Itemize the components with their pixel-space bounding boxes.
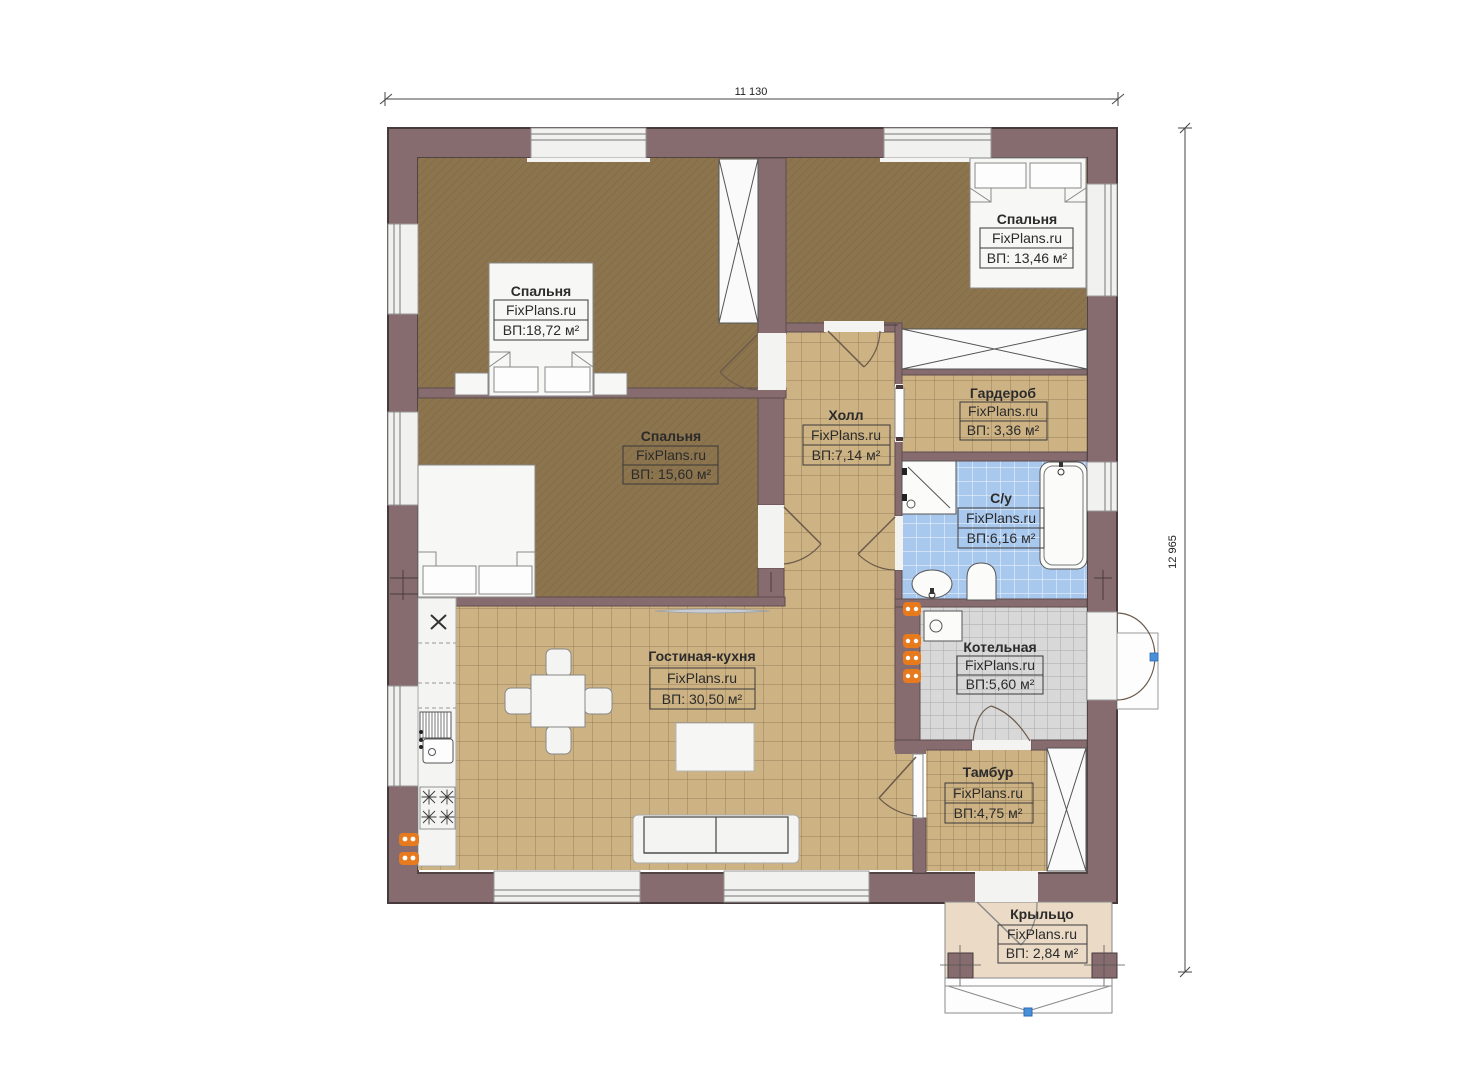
svg-text:Холл: Холл	[828, 407, 863, 423]
svg-text:FixPlans.ru: FixPlans.ru	[1007, 926, 1077, 942]
svg-text:FixPlans.ru: FixPlans.ru	[968, 403, 1038, 419]
svg-text:FixPlans.ru: FixPlans.ru	[992, 230, 1062, 246]
svg-text:Спальня: Спальня	[511, 283, 571, 299]
svg-text:ВП: 3,36 м²: ВП: 3,36 м²	[967, 422, 1040, 438]
svg-text:FixPlans.ru: FixPlans.ru	[636, 447, 706, 463]
svg-text:Котельная: Котельная	[963, 639, 1036, 655]
svg-text:FixPlans.ru: FixPlans.ru	[965, 657, 1035, 673]
svg-text:ВП: 13,46 м²: ВП: 13,46 м²	[987, 250, 1068, 266]
svg-text:Тамбур: Тамбур	[963, 764, 1014, 780]
svg-text:12 965: 12 965	[1167, 535, 1179, 569]
svg-text:Гостиная-кухня: Гостиная-кухня	[648, 648, 755, 664]
svg-text:Спальня: Спальня	[641, 428, 701, 444]
svg-text:ВП:6,16 м²: ВП:6,16 м²	[967, 530, 1036, 546]
svg-text:FixPlans.ru: FixPlans.ru	[966, 510, 1036, 526]
svg-text:Гардероб: Гардероб	[970, 385, 1037, 401]
svg-text:ВП:4,75 м²: ВП:4,75 м²	[954, 805, 1023, 821]
svg-text:Крыльцо: Крыльцо	[1010, 906, 1074, 922]
svg-text:ВП:18,72 м²: ВП:18,72 м²	[503, 322, 580, 338]
svg-text:FixPlans.ru: FixPlans.ru	[667, 670, 737, 686]
svg-text:ВП:5,60 м²: ВП:5,60 м²	[966, 676, 1035, 692]
svg-text:ВП: 15,60 м²: ВП: 15,60 м²	[631, 466, 712, 482]
svg-text:FixPlans.ru: FixPlans.ru	[811, 427, 881, 443]
svg-text:11 130: 11 130	[735, 86, 768, 98]
svg-text:FixPlans.ru: FixPlans.ru	[506, 302, 576, 318]
svg-text:ВП: 2,84 м²: ВП: 2,84 м²	[1006, 945, 1079, 961]
svg-text:ВП: 30,50 м²: ВП: 30,50 м²	[662, 691, 743, 707]
svg-text:ВП:7,14 м²: ВП:7,14 м²	[812, 447, 881, 463]
svg-text:FixPlans.ru: FixPlans.ru	[953, 785, 1023, 801]
svg-text:Спальня: Спальня	[997, 211, 1057, 227]
svg-text:С/у: С/у	[990, 490, 1012, 506]
